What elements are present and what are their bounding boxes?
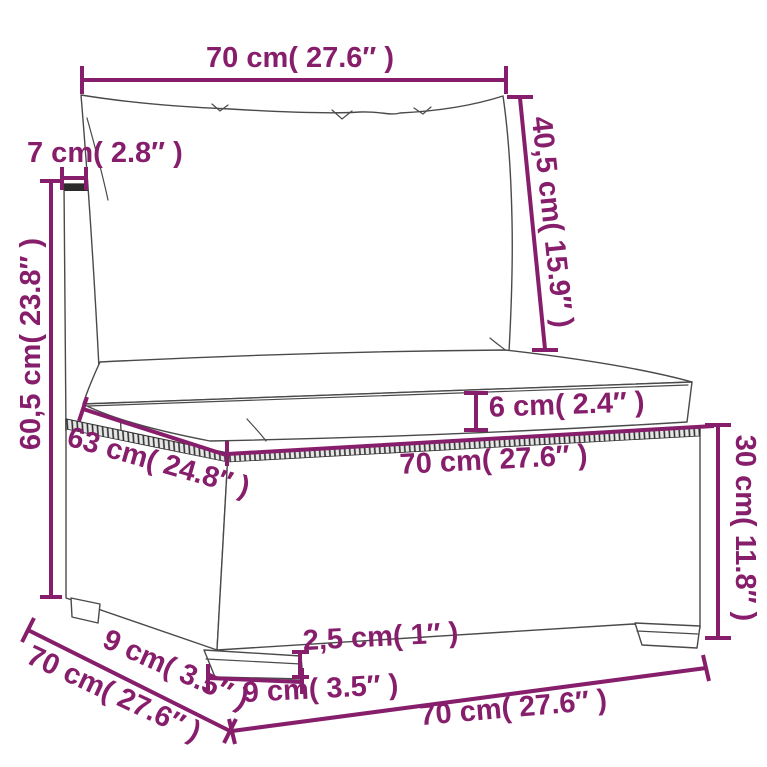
dim-label-top-width: 70 cm( 27.6″ ) [206, 42, 394, 74]
dim-top-width: 70 cm( 27.6″ ) [82, 42, 506, 94]
back-cushion [81, 95, 512, 368]
dim-foot-height: 2,5 cm( 1″ ) [292, 617, 459, 677]
dim-label-seat-cushion-thickness: 6 cm( 2.4″ ) [488, 386, 645, 423]
dim-label-bottom-width: 70 cm( 27.6″ ) [418, 684, 608, 732]
dim-label-foot-height: 2,5 cm( 1″ ) [302, 617, 459, 657]
front-right-foot [635, 623, 700, 648]
dim-total-height: 60,5 cm( 23.8″ ) [15, 181, 62, 597]
dim-back-cushion-height: 40,5 cm( 15.9″ ) [507, 97, 579, 350]
product-dimension-diagram: 70 cm( 27.6″ ) 7 cm( 2.8″ ) 60,5 cm( 23.… [0, 0, 767, 767]
dim-label-base-height: 30 cm( 11.8″ ) [729, 435, 761, 621]
dim-label-total-height: 60,5 cm( 23.8″ ) [15, 238, 47, 450]
dimension-line [705, 425, 731, 638]
diagram-canvas: 70 cm( 27.6″ ) 7 cm( 2.8″ ) 60,5 cm( 23.… [0, 0, 767, 767]
dim-base-height: 30 cm( 11.8″ ) [705, 425, 761, 638]
dim-label-foot-width: 9 cm( 3.5″ ) [242, 669, 399, 709]
dim-label-back-panel-thickness: 7 cm( 2.8″ ) [27, 137, 183, 169]
